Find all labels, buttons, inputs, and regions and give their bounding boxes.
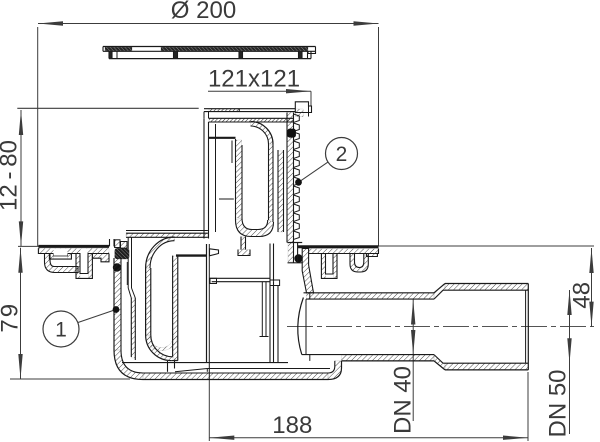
svg-text:121x121: 121x121: [208, 66, 300, 93]
svg-text:1: 1: [55, 319, 67, 342]
svg-text:Ø 200: Ø 200: [171, 0, 236, 24]
svg-text:DN 40: DN 40: [390, 366, 417, 434]
svg-text:12 - 80: 12 - 80: [0, 140, 23, 211]
svg-text:188: 188: [272, 412, 312, 439]
svg-text:79: 79: [0, 302, 24, 333]
svg-text:2: 2: [336, 143, 348, 166]
svg-text:DN 50: DN 50: [545, 369, 572, 437]
